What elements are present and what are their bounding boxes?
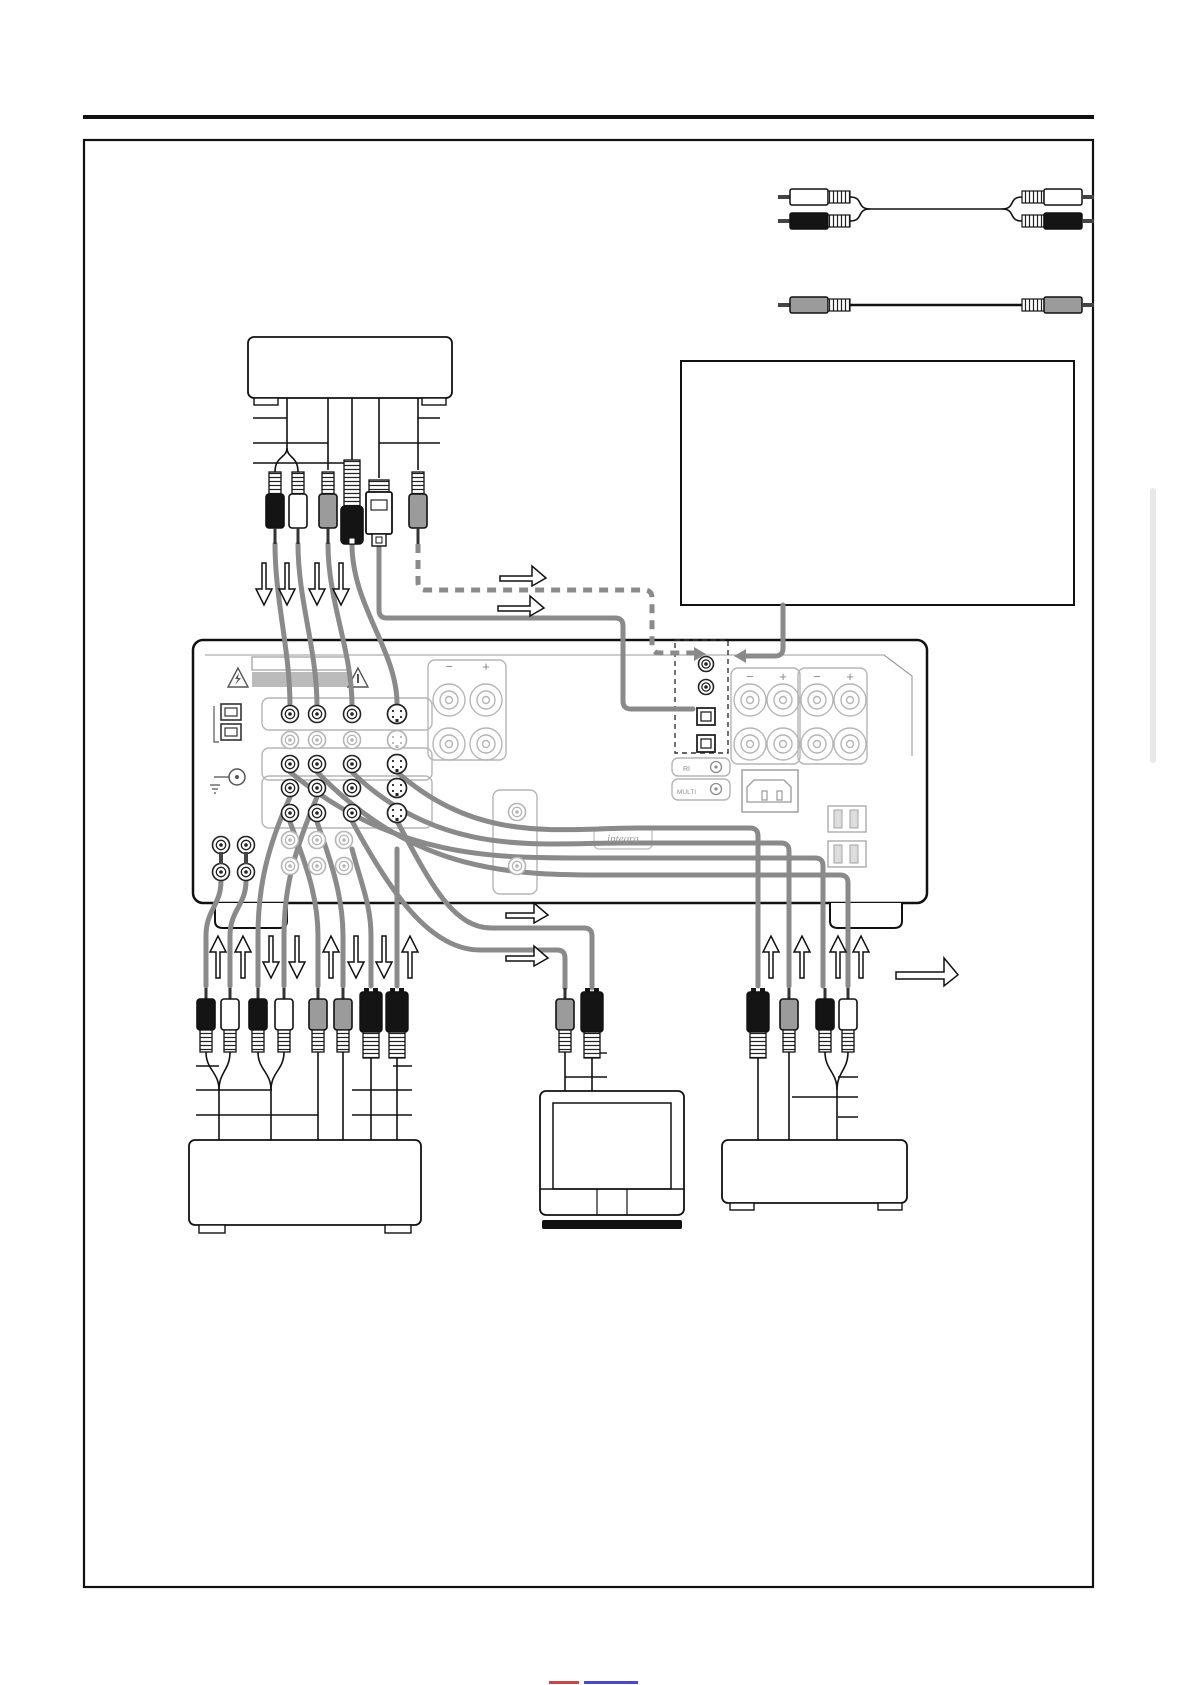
rca-jack-pinhole bbox=[515, 810, 519, 814]
signal-arrow-right-icon bbox=[506, 903, 548, 923]
cable-lead-line bbox=[206, 1052, 219, 1090]
note-box bbox=[681, 361, 1074, 605]
plug-barrel bbox=[344, 460, 360, 506]
signal-arrow-up-icon bbox=[402, 936, 418, 978]
recorder-device-foot bbox=[385, 1225, 411, 1233]
svideo-jack-pin bbox=[392, 784, 394, 786]
plug-barrel bbox=[369, 480, 389, 492]
plug-barrel bbox=[269, 472, 281, 494]
plug-barrel bbox=[842, 1030, 854, 1052]
rca-plug-pin bbox=[778, 219, 790, 223]
rca-jack-pinhole bbox=[288, 712, 292, 716]
rca-jack-pinhole bbox=[288, 838, 292, 842]
rca-plug-white bbox=[275, 999, 293, 1030]
plug-barrel bbox=[750, 1032, 766, 1058]
plug-barrel bbox=[292, 472, 304, 494]
svideo-jack-pin bbox=[392, 710, 394, 712]
plug-barrel bbox=[224, 1030, 236, 1052]
signal-arrow-up-icon bbox=[235, 936, 251, 978]
svideo-jack-pin bbox=[392, 760, 394, 762]
signal-arrow-right-icon bbox=[500, 566, 546, 586]
plug-barrel bbox=[819, 1030, 831, 1052]
svideo-jack-slot bbox=[396, 745, 399, 748]
rca-jack-pinhole bbox=[342, 864, 346, 868]
recorder-device-box bbox=[189, 1140, 421, 1225]
cropped-footer-text bbox=[549, 1681, 579, 1684]
optical-port bbox=[221, 724, 241, 740]
rca-plug-body-white bbox=[790, 189, 828, 205]
rca-jack-pinhole bbox=[350, 738, 354, 742]
rca-jack-pinhole bbox=[315, 762, 319, 766]
jack-link-bar bbox=[219, 852, 223, 864]
rca-plug-barrel bbox=[828, 215, 850, 227]
signal-arrow-down-icon bbox=[376, 936, 392, 978]
cable-lead-line bbox=[825, 1052, 837, 1090]
ri-jack-label: RI bbox=[683, 766, 690, 773]
svideo-jack-pin bbox=[392, 742, 394, 744]
rca-plug-barrel bbox=[828, 191, 850, 203]
playback-device-box bbox=[722, 1140, 907, 1203]
speaker-polarity-label: + bbox=[779, 669, 787, 684]
svideo-plug-black bbox=[581, 992, 603, 1032]
plug-barrel bbox=[278, 1030, 290, 1052]
plug-pin bbox=[824, 988, 827, 999]
svideo-jack-slot bbox=[396, 769, 399, 772]
receiver-foot bbox=[830, 903, 902, 928]
ac-outlet-slot bbox=[834, 845, 842, 863]
mini-jack-dot bbox=[714, 765, 717, 768]
rca-jack-pinhole bbox=[219, 870, 223, 874]
svideo-plug-black bbox=[747, 992, 769, 1032]
generated-diagram-layer: −+−+−+ bbox=[83, 115, 1156, 1684]
svideo-jack-pin bbox=[392, 790, 394, 792]
ac-outlet-slot bbox=[834, 810, 842, 828]
plug-barrel bbox=[363, 1032, 379, 1058]
speaker-polarity-label: + bbox=[482, 659, 490, 674]
rca-plug-white bbox=[839, 999, 857, 1030]
source-device-foot bbox=[254, 398, 278, 405]
svideo-jack-pin bbox=[392, 815, 394, 817]
svideo-jack-pin bbox=[400, 790, 402, 792]
rca-jack-pinhole bbox=[315, 738, 319, 742]
plug-barrel bbox=[559, 1030, 571, 1052]
page-edge-tab bbox=[1150, 488, 1156, 763]
rca-jack-pinhole bbox=[515, 864, 519, 868]
rca-plug-pin bbox=[1082, 195, 1094, 199]
svideo-jack-pin bbox=[400, 766, 402, 768]
speaker-polarity-label: − bbox=[445, 659, 453, 674]
rca-jack-pinhole bbox=[704, 662, 708, 666]
ground-terminal-dot bbox=[235, 775, 239, 779]
rca-plug-gray bbox=[556, 999, 574, 1030]
svideo-jack-pin bbox=[400, 809, 402, 811]
optical-digital-jack bbox=[697, 735, 715, 752]
signal-arrow-up-icon bbox=[830, 936, 846, 978]
rca-jack-pinhole bbox=[219, 843, 223, 847]
rca-plug-pin bbox=[1082, 219, 1094, 223]
rca-plug-barrel bbox=[1022, 299, 1044, 311]
rca-plug-black bbox=[249, 999, 267, 1030]
signal-arrow-right-icon bbox=[896, 958, 958, 986]
cable-coax-digital-dashed bbox=[418, 544, 694, 653]
rca-jack-pinhole bbox=[315, 838, 319, 842]
ac-outlet-slot bbox=[850, 810, 858, 828]
plug-pin bbox=[229, 988, 232, 999]
signal-arrow-down-icon bbox=[289, 936, 305, 978]
optical-plug-tip bbox=[372, 534, 386, 546]
signal-arrow-up-icon bbox=[853, 936, 869, 978]
signal-arrow-down-icon bbox=[309, 563, 325, 605]
cable-lead-line bbox=[258, 1052, 271, 1090]
rca-jack-pinhole bbox=[288, 786, 292, 790]
signal-arrow-up-icon bbox=[763, 936, 779, 978]
rca-jack-pinhole bbox=[288, 762, 292, 766]
plug-barrel bbox=[322, 472, 334, 494]
plug-barrel bbox=[252, 1030, 264, 1052]
plug-notch bbox=[349, 538, 355, 544]
optical-plug bbox=[366, 492, 392, 534]
plug-pin bbox=[342, 988, 345, 999]
connection-diagram: −+−+−+ integra RI MULTI bbox=[0, 0, 1191, 1685]
svideo-jack-pin bbox=[400, 784, 402, 786]
rca-plug-black bbox=[197, 999, 215, 1030]
rca-plug-gray bbox=[334, 999, 352, 1030]
rca-plug-pin bbox=[778, 195, 790, 199]
plug-pin bbox=[274, 528, 277, 544]
rca-jack-pinhole bbox=[350, 811, 354, 815]
svideo-plug-black bbox=[360, 992, 382, 1032]
plug-pin bbox=[317, 988, 320, 999]
signal-arrow-down-icon bbox=[256, 563, 272, 605]
cable-lead-line bbox=[275, 448, 287, 472]
label-strip bbox=[252, 672, 348, 687]
rca-plug-black bbox=[266, 494, 284, 528]
plug-pin bbox=[283, 988, 286, 999]
cable-lead-line bbox=[271, 1052, 284, 1090]
rca-plug-body-black bbox=[790, 213, 828, 229]
rca-plug-barrel bbox=[1022, 191, 1044, 203]
rca-jack-pinhole bbox=[342, 838, 346, 842]
page-top-rule bbox=[83, 115, 1094, 119]
rca-jack-pinhole bbox=[244, 843, 248, 847]
rca-jack-pinhole bbox=[350, 786, 354, 790]
rca-jack-pinhole bbox=[315, 864, 319, 868]
rca-jack-pinhole bbox=[350, 712, 354, 716]
tv-base bbox=[542, 1220, 682, 1229]
rca-jack-pinhole bbox=[315, 712, 319, 716]
plug-pin bbox=[327, 528, 330, 544]
rca-jack-pinhole bbox=[350, 762, 354, 766]
plug-barrel bbox=[584, 1032, 600, 1058]
svideo-jack-slot bbox=[396, 719, 399, 722]
rca-plug-body-white bbox=[1044, 189, 1082, 205]
plug-barrel bbox=[783, 1030, 795, 1052]
plug-barrel bbox=[337, 1030, 349, 1052]
signal-arrow-up-icon bbox=[210, 936, 226, 978]
jack-link-bar bbox=[244, 852, 248, 864]
plug-barrel bbox=[389, 1032, 405, 1058]
signal-arrow-up-icon bbox=[794, 936, 810, 978]
rca-plug-pin bbox=[1082, 303, 1094, 307]
cropped-footer-text bbox=[584, 1681, 638, 1684]
plug-barrel bbox=[412, 472, 424, 494]
svideo-jack-pin bbox=[392, 736, 394, 738]
cable-lead-line bbox=[287, 448, 298, 472]
rca-jack-pinhole bbox=[704, 685, 708, 689]
recorder-device-foot bbox=[199, 1225, 225, 1233]
plug-pin bbox=[257, 988, 260, 999]
cable-lead-line bbox=[837, 1052, 848, 1090]
plug-pin bbox=[417, 528, 420, 544]
optical-digital-jack bbox=[697, 708, 715, 725]
stereo-cable-wire bbox=[850, 209, 1022, 221]
plug-barrel bbox=[200, 1030, 212, 1052]
rca-plug-barrel bbox=[828, 299, 850, 311]
rca-plug-gray bbox=[409, 494, 427, 528]
rca-jack-pinhole bbox=[288, 738, 292, 742]
rca-plug-white bbox=[289, 494, 307, 528]
cable-lead-line bbox=[219, 1052, 230, 1090]
rca-plug-body-black bbox=[1044, 213, 1082, 229]
multi-jack-label: MULTI bbox=[677, 789, 696, 796]
svideo-jack-pin bbox=[400, 742, 402, 744]
rca-plug-gray bbox=[780, 999, 798, 1030]
playback-device-foot bbox=[878, 1203, 902, 1210]
rca-plug-black bbox=[816, 999, 834, 1030]
signal-arrow-right-icon bbox=[498, 596, 544, 616]
plug-pin bbox=[564, 988, 567, 999]
rca-plug-white bbox=[221, 999, 239, 1030]
rca-jack-pinhole bbox=[244, 870, 248, 874]
ac-outlet-slot bbox=[850, 845, 858, 863]
rca-plug-barrel bbox=[1022, 215, 1044, 227]
rca-plug-pin bbox=[778, 303, 790, 307]
rca-plug-body-gray bbox=[790, 297, 828, 313]
plug-pin bbox=[847, 988, 850, 999]
speaker-polarity-label: + bbox=[846, 669, 854, 684]
manual-page: −+−+−+ integra RI MULTI bbox=[0, 0, 1191, 1685]
signal-arrow-down-icon bbox=[348, 936, 364, 978]
brand-logo-text: integra bbox=[607, 833, 639, 845]
receiver-foot bbox=[215, 903, 287, 928]
source-device-foot bbox=[422, 398, 446, 405]
signal-arrow-down-icon bbox=[263, 936, 279, 978]
svideo-jack-pin bbox=[392, 809, 394, 811]
source-device-box bbox=[248, 337, 452, 398]
tv-screen bbox=[553, 1103, 671, 1189]
svideo-jack-pin bbox=[400, 710, 402, 712]
rca-jack-pinhole bbox=[288, 811, 292, 815]
plug-barrel bbox=[312, 1030, 324, 1052]
signal-arrow-up-icon bbox=[323, 936, 339, 978]
rca-jack-pinhole bbox=[315, 786, 319, 790]
svideo-jack-pin bbox=[400, 736, 402, 738]
speaker-polarity-label: − bbox=[813, 669, 821, 684]
svideo-plug-black bbox=[386, 992, 408, 1032]
mini-jack-dot bbox=[714, 787, 717, 790]
rca-plug-body-gray bbox=[1044, 297, 1082, 313]
optical-port bbox=[221, 704, 241, 720]
svideo-jack-pin bbox=[400, 815, 402, 817]
svideo-jack-pin bbox=[392, 766, 394, 768]
svideo-jack-pin bbox=[392, 716, 394, 718]
plug-pin bbox=[205, 988, 208, 999]
svideo-jack-pin bbox=[400, 760, 402, 762]
rca-plug-gray bbox=[319, 494, 337, 528]
playback-device-foot bbox=[730, 1203, 754, 1210]
rca-plug-gray bbox=[309, 999, 327, 1030]
svideo-jack-slot bbox=[396, 818, 399, 821]
stereo-cable-wire bbox=[850, 197, 1022, 209]
plug-pin bbox=[297, 528, 300, 544]
svideo-jack-slot bbox=[396, 793, 399, 796]
plug-pin bbox=[788, 988, 791, 999]
rca-jack-pinhole bbox=[288, 864, 292, 868]
svideo-jack-pin bbox=[400, 716, 402, 718]
rca-jack-pinhole bbox=[315, 811, 319, 815]
speaker-polarity-label: − bbox=[746, 669, 754, 684]
